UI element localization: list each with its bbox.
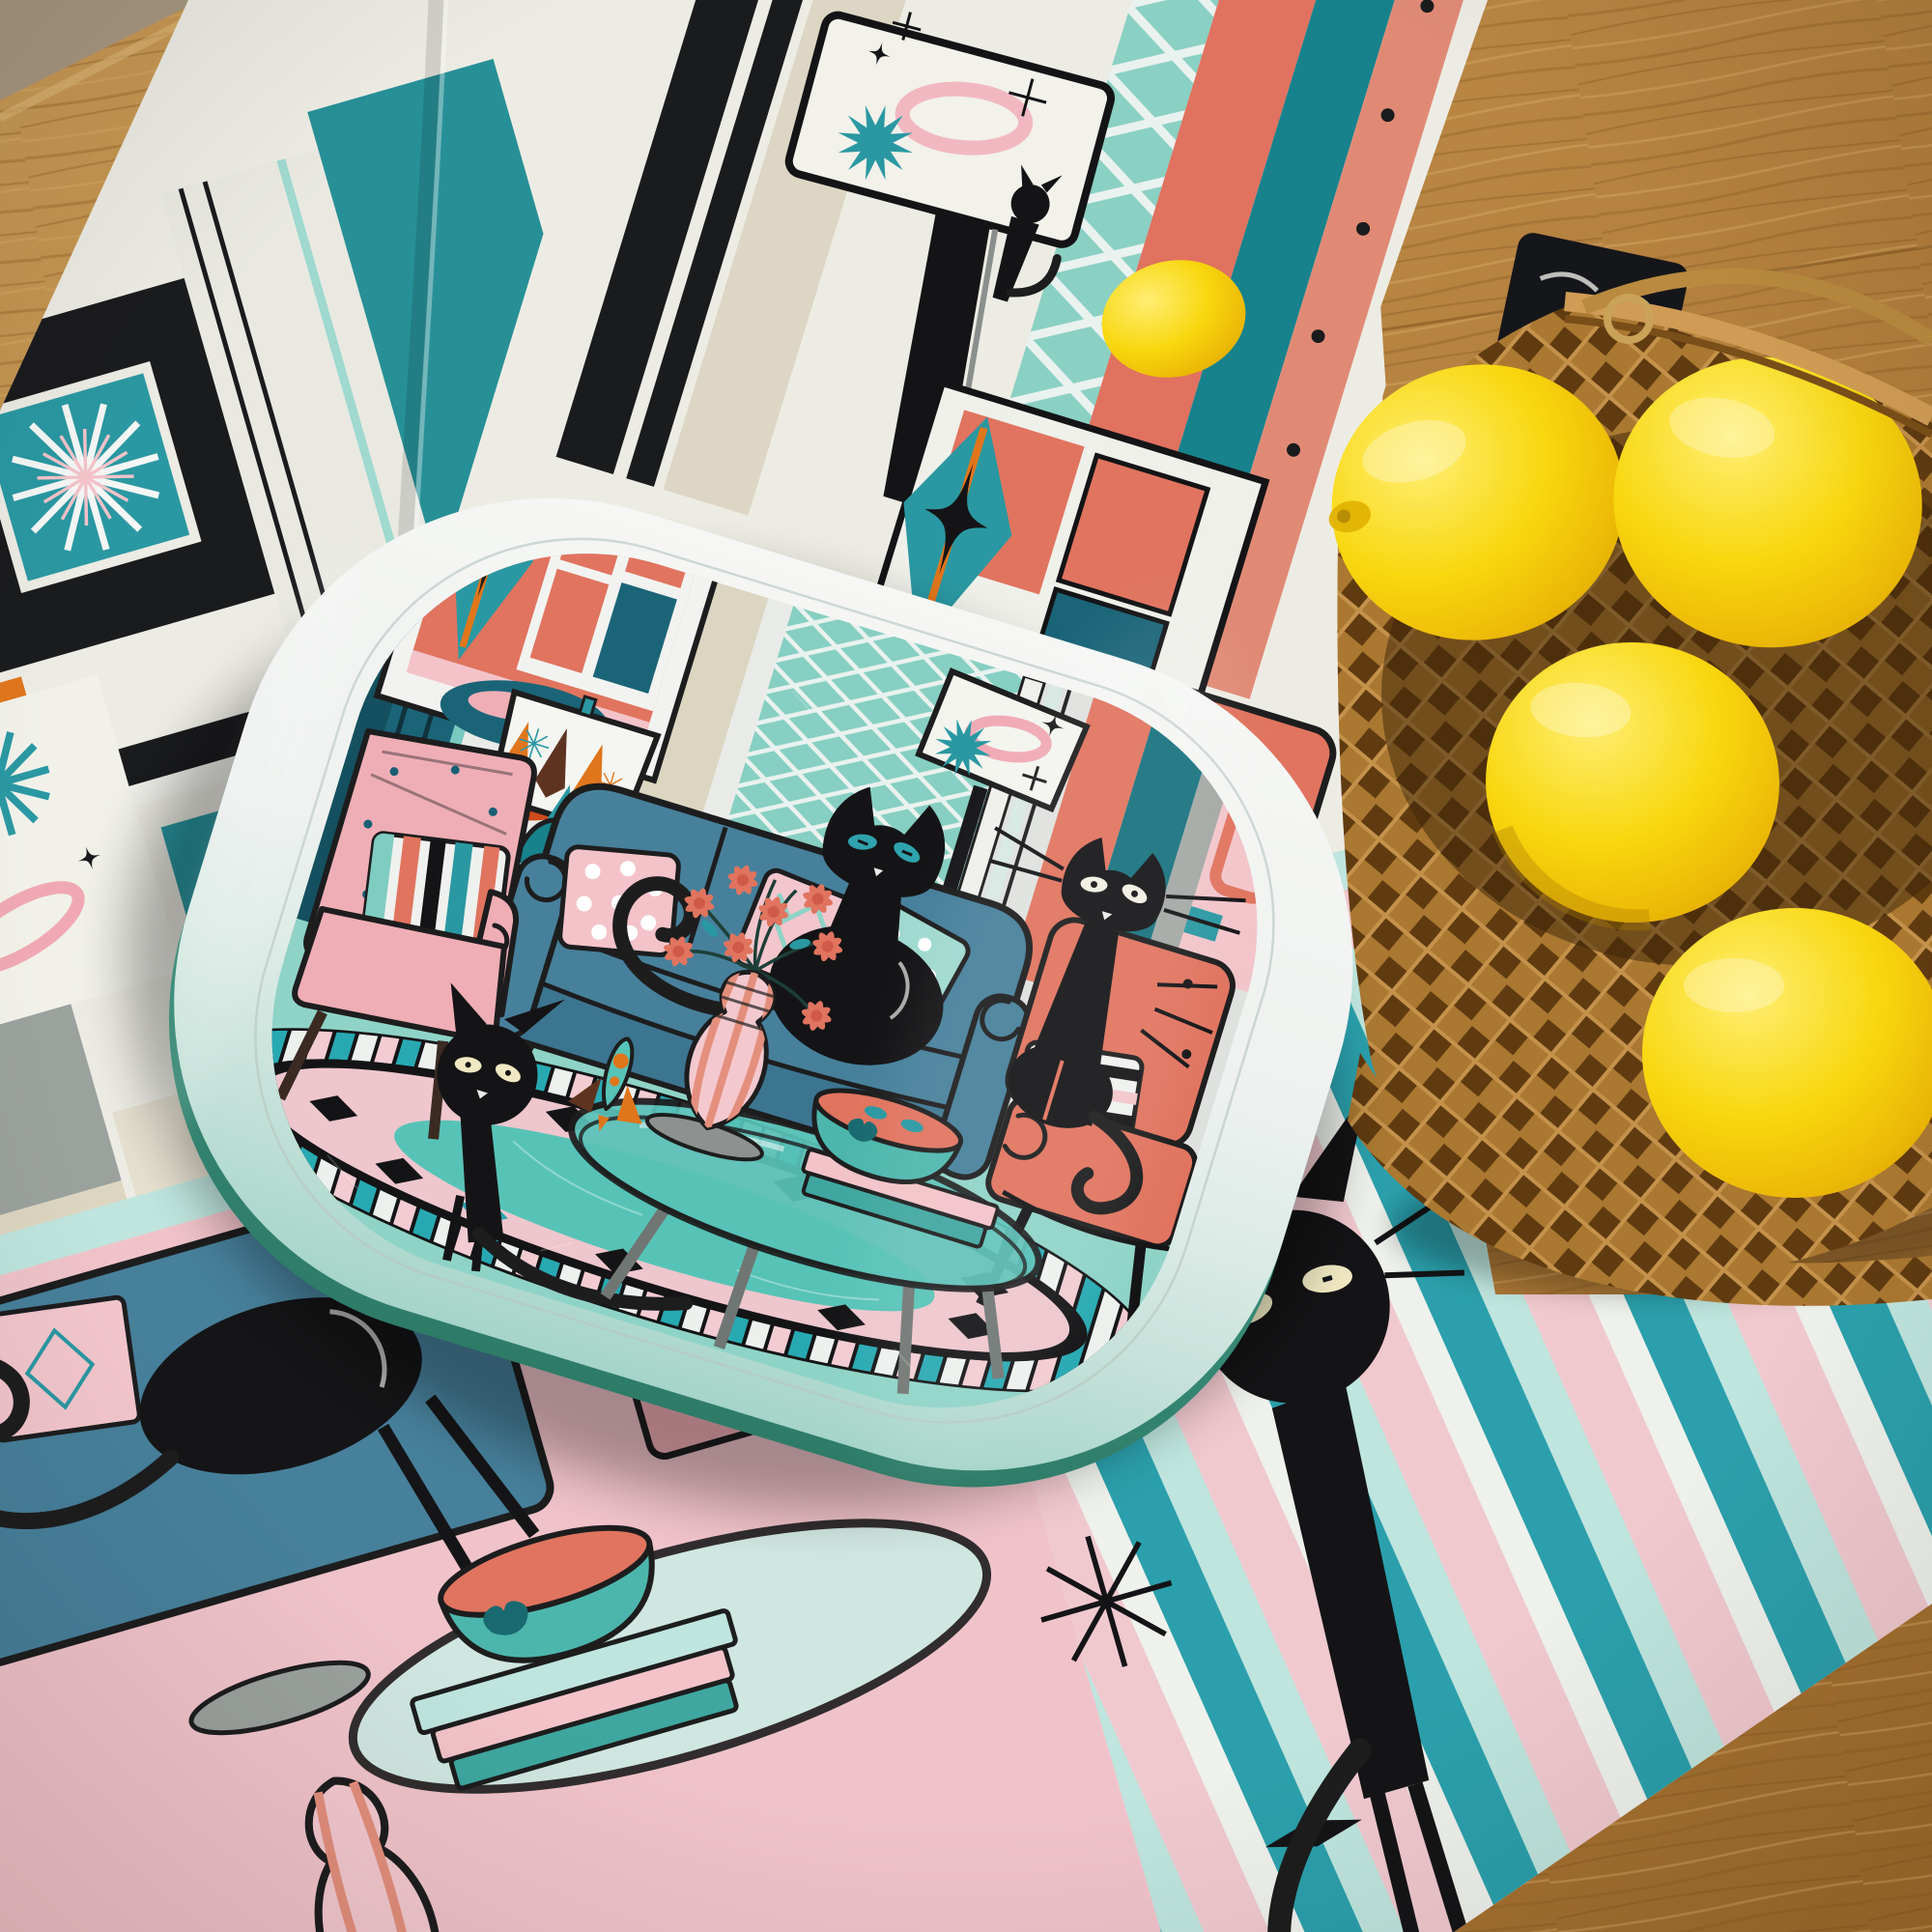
product-photo-scene xyxy=(0,0,1932,1932)
photo-canvas xyxy=(0,0,1932,1932)
vignette-overlay xyxy=(0,0,1932,1932)
